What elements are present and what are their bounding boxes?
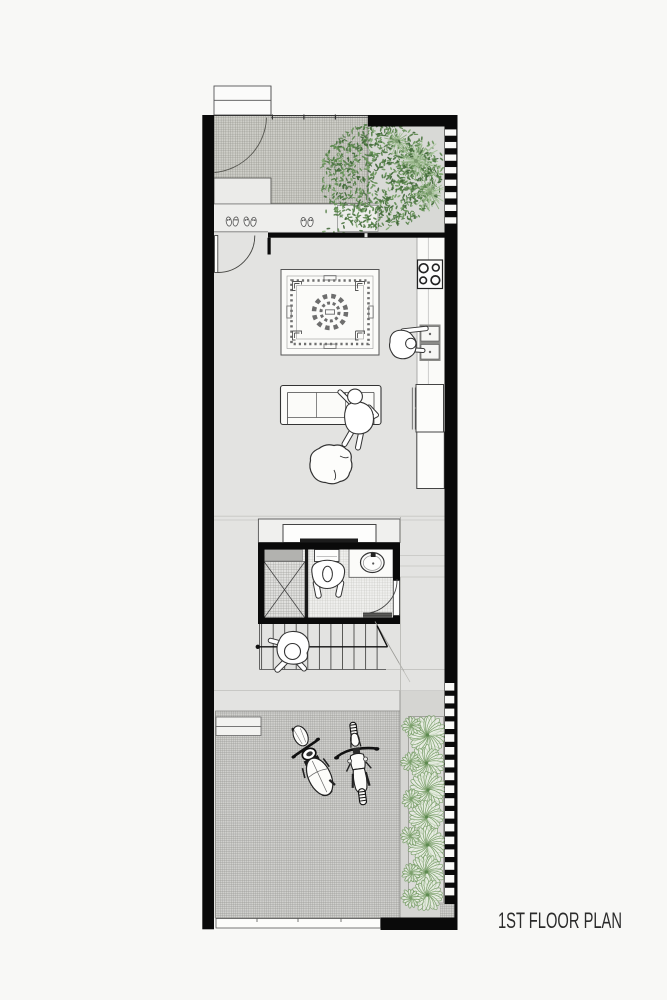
svg-text:1ST FLOOR PLAN: 1ST FLOOR PLAN — [498, 908, 622, 933]
